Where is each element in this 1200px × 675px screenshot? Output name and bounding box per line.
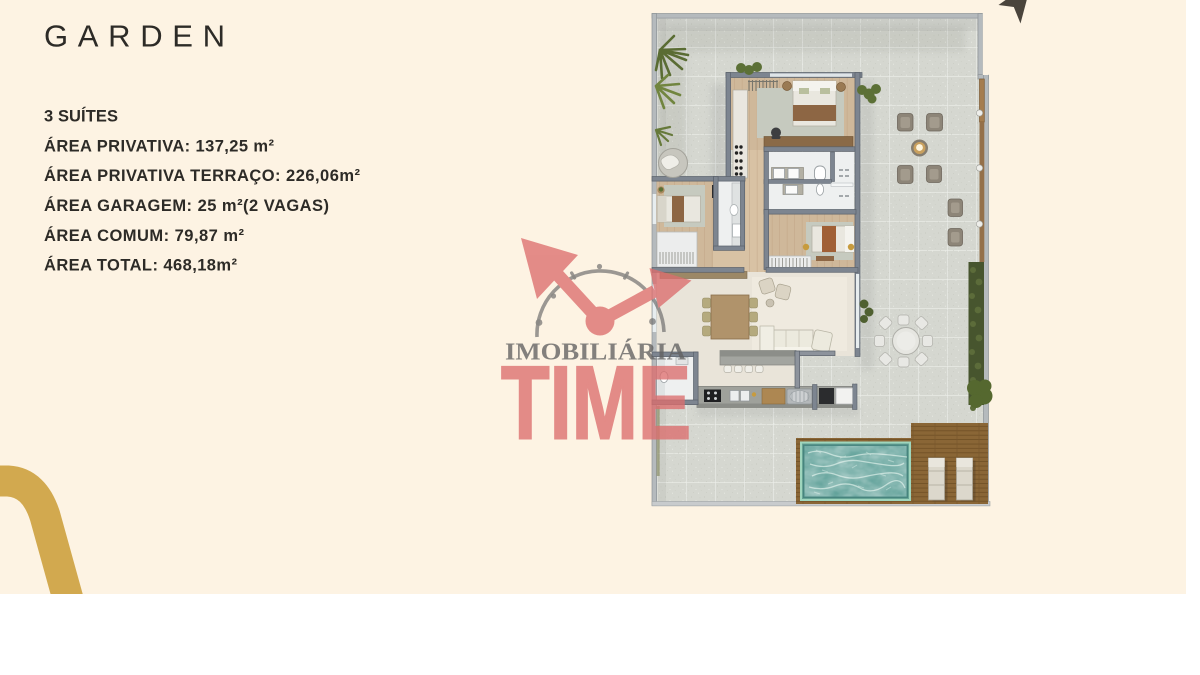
svg-text:TIME: TIME [501,346,691,462]
svg-text:ÁREA GARAGEM: 25 m²(2 VAGAS): ÁREA GARAGEM: 25 m²(2 VAGAS) [44,196,329,215]
svg-text:ÁREA TOTAL: 468,18m²: ÁREA TOTAL: 468,18m² [44,256,238,275]
svg-text:ÁREA PRIVATIVA: 137,25 m²: ÁREA PRIVATIVA: 137,25 m² [44,137,275,156]
svg-text:ÁREA COMUM: 79,87 m²: ÁREA COMUM: 79,87 m² [44,226,245,245]
svg-text:ÁREA PRIVATIVA TERRAÇO: 226,06: ÁREA PRIVATIVA TERRAÇO: 226,06m² [44,166,361,185]
svg-text:3 SUÍTES: 3 SUÍTES [44,107,118,126]
